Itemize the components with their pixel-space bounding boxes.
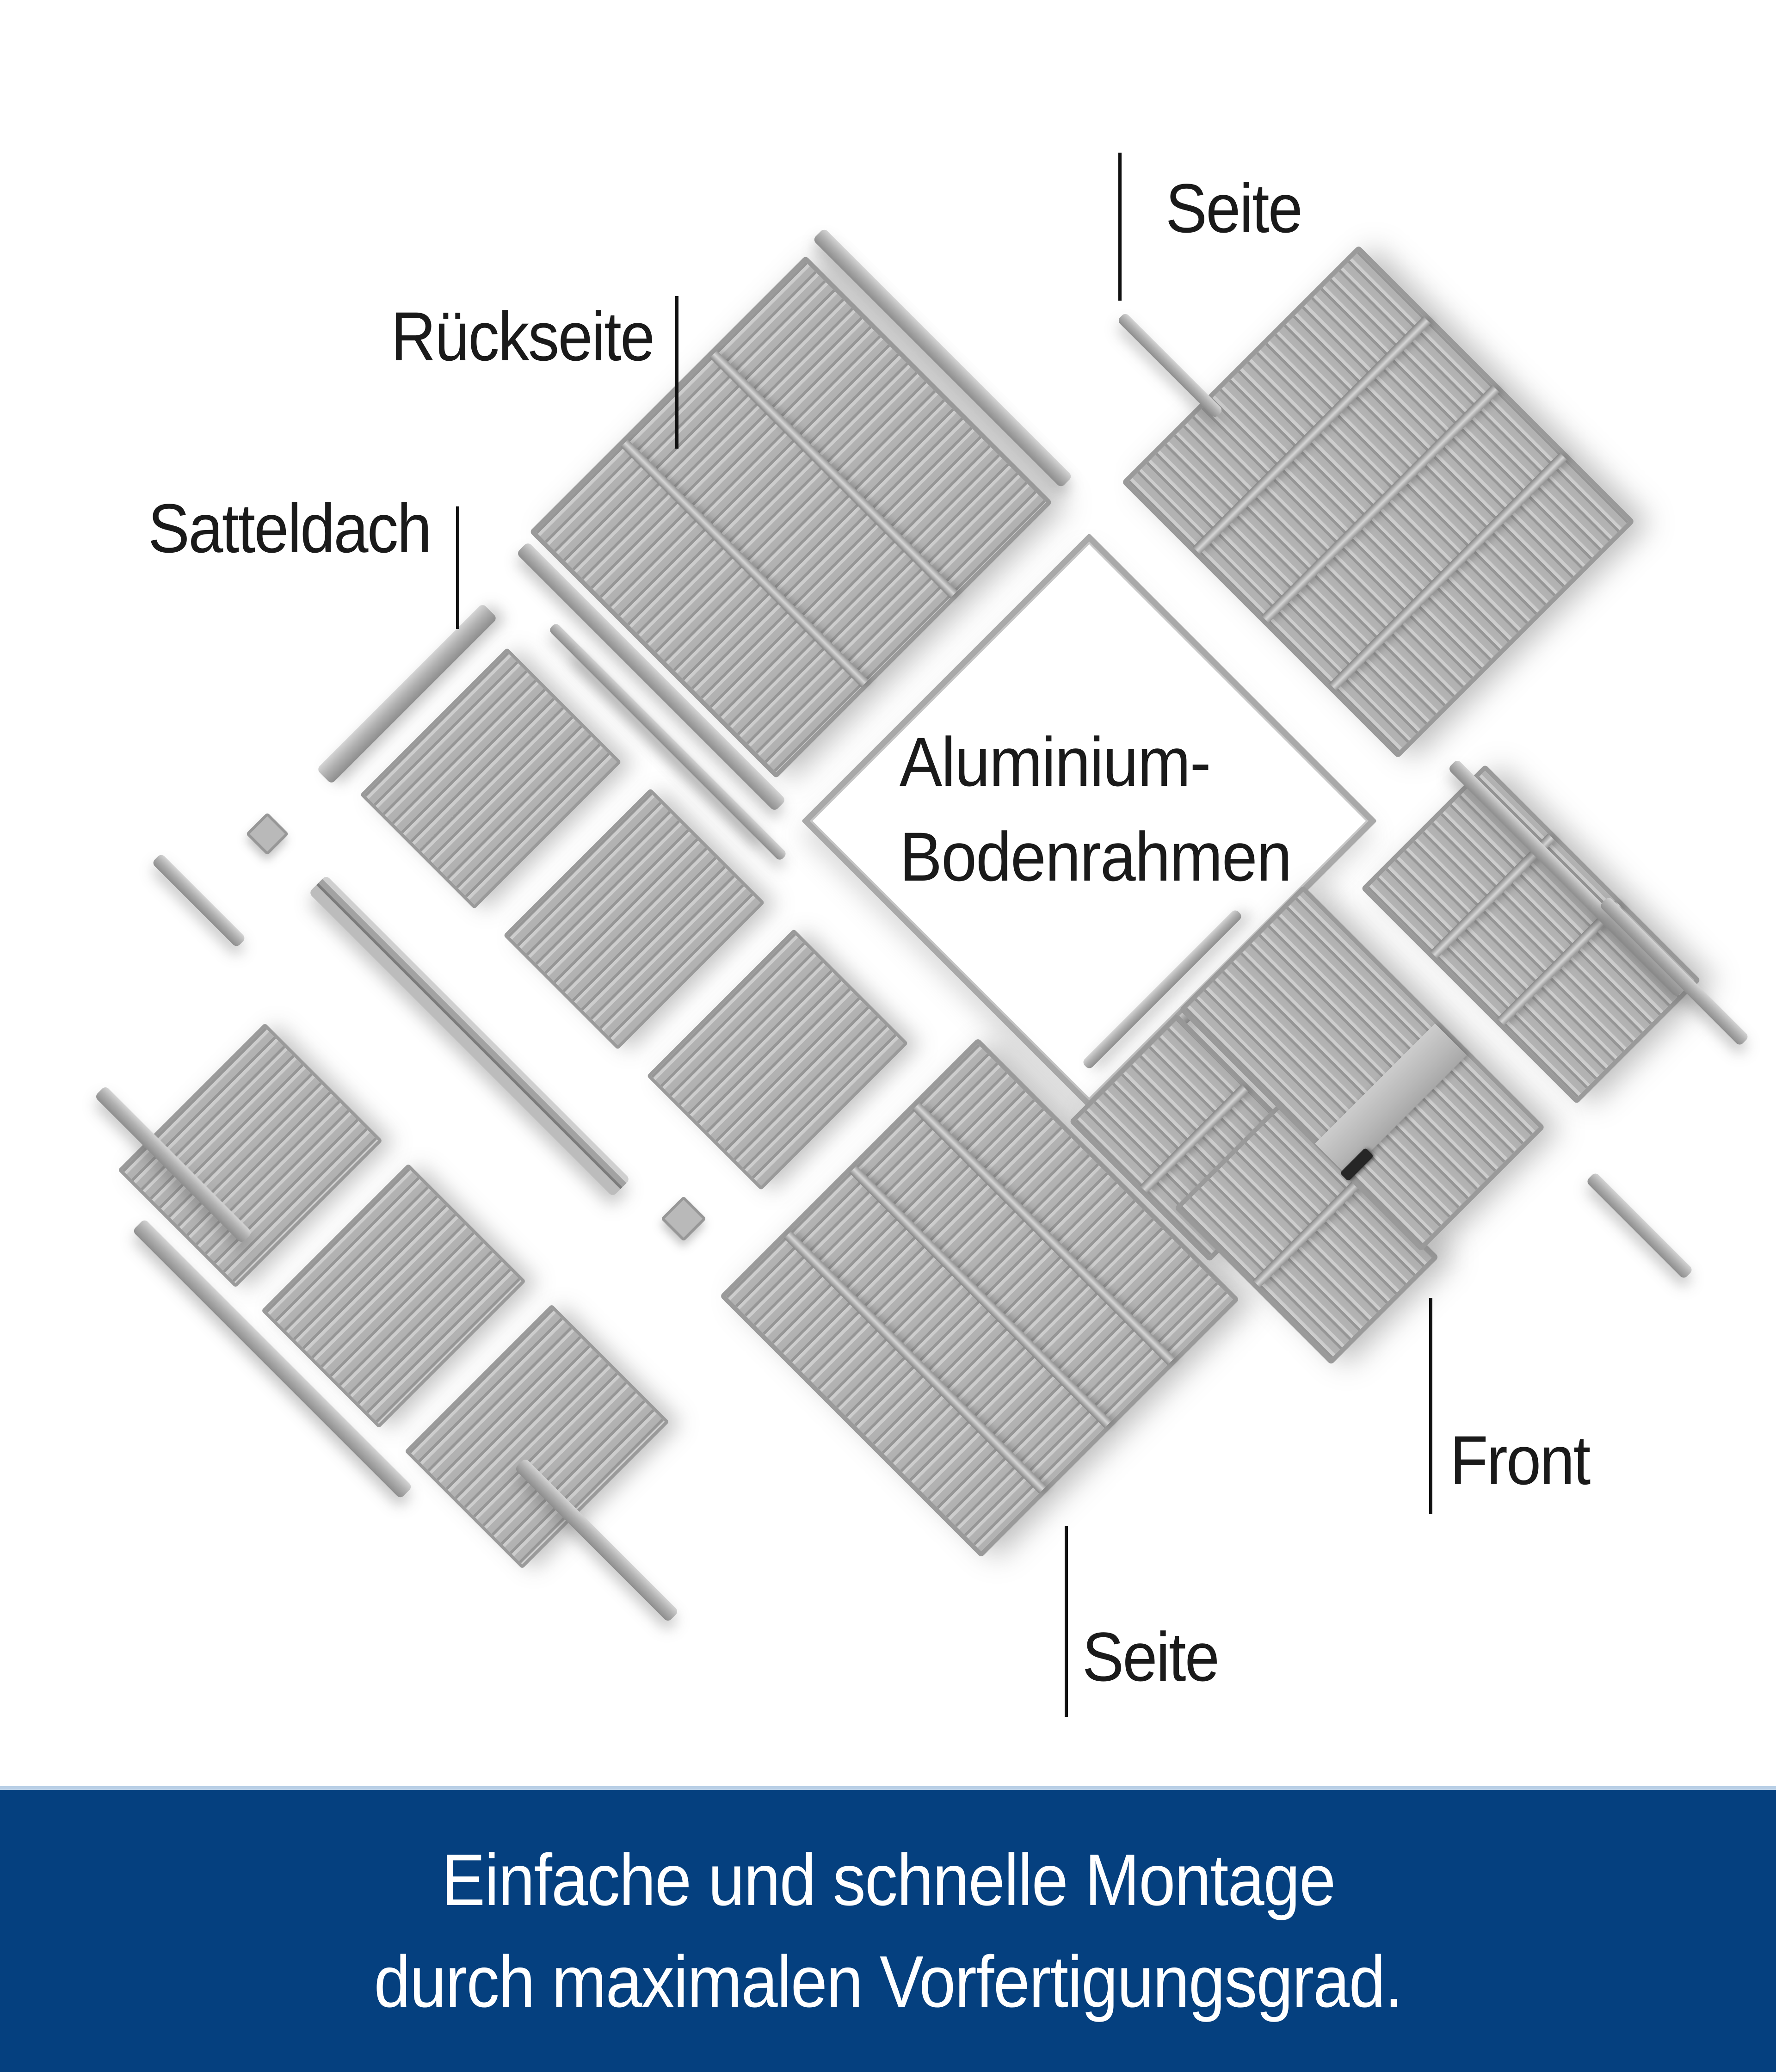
label-seite-top-text: Seite <box>1165 170 1301 247</box>
exploded-shed-diagram: Seite Rückseite Satteldach Aluminium- Bo… <box>0 0 1776 1786</box>
wall-edge-rail <box>1117 312 1224 419</box>
label-seite-top: Seite <box>1165 170 1317 247</box>
wall-divider-rail <box>1193 316 1431 554</box>
wall-divider-rail <box>1253 1179 1362 1288</box>
label-bodenrahmen: Aluminium- Bodenrahmen <box>900 715 1325 904</box>
label-bodenrahmen-line1: Aluminium- <box>900 715 1291 809</box>
wall-divider-rail <box>1329 453 1567 691</box>
banner: Einfache und schnelle Montage durch maxi… <box>0 1786 1776 2072</box>
callout-line-seite-bottom <box>1065 1526 1068 1717</box>
roof-trim-rail <box>151 853 246 948</box>
callout-line-front <box>1429 1298 1432 1514</box>
wall-divider-rail <box>784 1231 1046 1493</box>
label-rueckseite-text: Rückseite <box>391 298 654 375</box>
gable-cap <box>246 812 289 855</box>
wall-divider-rail <box>850 1165 1112 1428</box>
banner-line1: Einfache und schnelle Montage <box>441 1844 1335 1917</box>
callout-line-seite-top <box>1118 153 1122 301</box>
wall-divider-rail <box>1262 385 1499 623</box>
door-leaf <box>1315 1024 1467 1175</box>
label-bodenrahmen-line2: Bodenrahmen <box>900 809 1291 904</box>
label-front: Front <box>1450 1422 1605 1498</box>
label-satteldach-text: Satteldach <box>148 490 431 567</box>
label-seite-bottom: Seite <box>1082 1619 1233 1695</box>
front-corner-rail <box>1585 1172 1693 1279</box>
banner-line2: durch maximalen Vorfertigungsgrad. <box>374 1945 1402 2018</box>
label-front-text: Front <box>1450 1422 1590 1498</box>
label-satteldach: Satteldach <box>148 490 462 567</box>
label-seite-bottom-text: Seite <box>1082 1619 1218 1695</box>
gable-cap <box>661 1196 707 1242</box>
label-rueckseite: Rückseite <box>391 298 683 375</box>
